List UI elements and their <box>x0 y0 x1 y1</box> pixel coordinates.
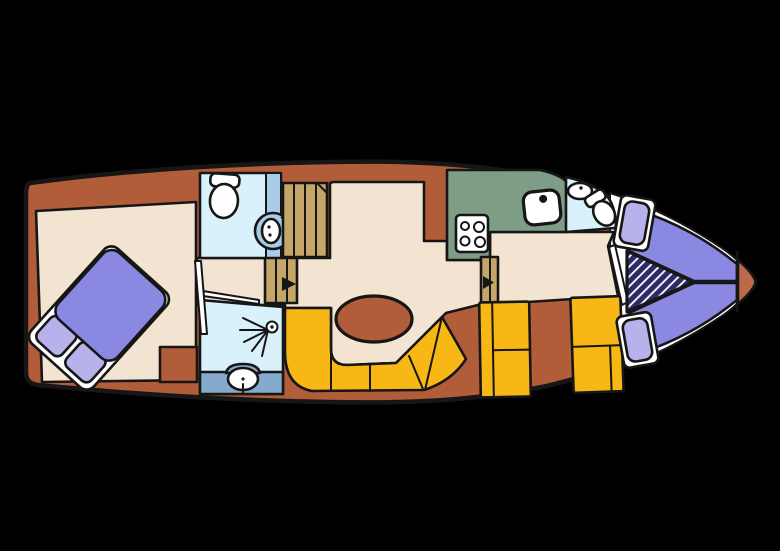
burner-icon <box>475 237 485 247</box>
seat-block-a <box>479 302 531 398</box>
toilet-bowl <box>209 183 239 219</box>
aft-cabin-step <box>160 347 197 382</box>
dinette-table <box>336 296 412 342</box>
burner-icon <box>461 237 470 246</box>
basin-drain-dot <box>268 233 271 236</box>
burner-icon <box>461 222 469 230</box>
bow-pillow-panel-top <box>613 194 656 251</box>
aft-bathroom-washbasin <box>262 219 280 243</box>
seat-seam <box>493 350 530 351</box>
screenshot-canvas <box>0 0 780 551</box>
lower-steps <box>265 258 297 303</box>
galley-sink <box>522 189 561 226</box>
burner-icon <box>474 222 484 232</box>
seat-block-b <box>570 296 623 393</box>
sink-basin <box>522 189 561 226</box>
basin-tap-dot <box>267 225 270 228</box>
bow-pillow-panel-bottom <box>616 311 659 368</box>
boat-floor-plan <box>0 0 780 551</box>
basin-tap-dot <box>579 186 582 189</box>
shower-head-dot <box>270 325 273 328</box>
shower-basin-dot <box>241 377 244 380</box>
aft-toilet <box>208 173 240 219</box>
